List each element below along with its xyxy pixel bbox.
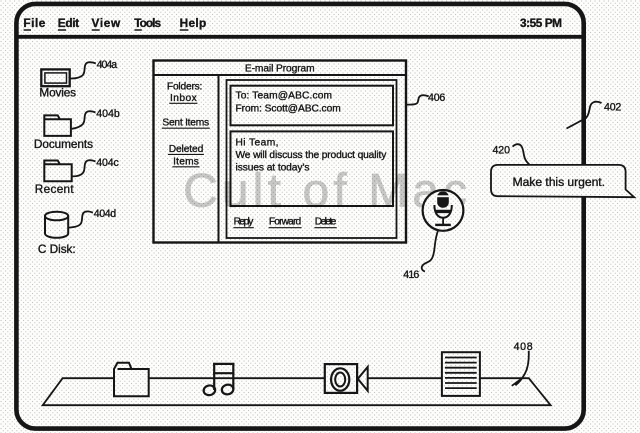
svg-text:Inbox: Inbox (170, 93, 197, 104)
svg-text:Delete: Delete (315, 216, 337, 227)
svg-text:416: 416 (403, 269, 419, 281)
svg-text:Hi Team,: Hi Team, (236, 137, 279, 148)
svg-text:To: Team@ABC.com: To: Team@ABC.com (236, 91, 333, 102)
svg-text:Forward: Forward (269, 216, 302, 227)
svg-text:Edit: Edit (58, 16, 79, 30)
svg-text:We will discuss the product qu: We will discuss the product quality (236, 150, 388, 161)
svg-text:408: 408 (514, 341, 533, 353)
svg-text:From: Scott@ABC.com: From: Scott@ABC.com (236, 104, 341, 115)
svg-text:Recent: Recent (35, 182, 75, 196)
svg-text:Make this urgent.: Make this urgent. (513, 175, 606, 189)
svg-text:Deleted: Deleted (169, 144, 204, 155)
svg-text:Folders:: Folders: (167, 82, 203, 93)
svg-text:Documents: Documents (34, 137, 93, 151)
svg-text:Tools: Tools (134, 16, 161, 30)
svg-text:Reply: Reply (234, 216, 255, 227)
svg-text:Help: Help (180, 16, 207, 30)
svg-text:406: 406 (428, 92, 445, 104)
svg-text:3:55 PM: 3:55 PM (520, 16, 562, 30)
svg-text:404c: 404c (96, 157, 119, 169)
svg-text:420: 420 (493, 145, 511, 157)
svg-text:402: 402 (604, 102, 621, 114)
svg-text:File: File (23, 16, 45, 30)
svg-text:E-mail Program: E-mail Program (245, 64, 315, 75)
svg-text:C Disk:: C Disk: (38, 242, 76, 256)
svg-text:404a: 404a (97, 59, 118, 71)
svg-text:Sent Items: Sent Items (162, 118, 209, 129)
svg-text:404d: 404d (94, 208, 117, 220)
svg-text:Movies: Movies (39, 85, 76, 99)
svg-text:404b: 404b (96, 108, 120, 120)
svg-text:View: View (92, 16, 122, 30)
